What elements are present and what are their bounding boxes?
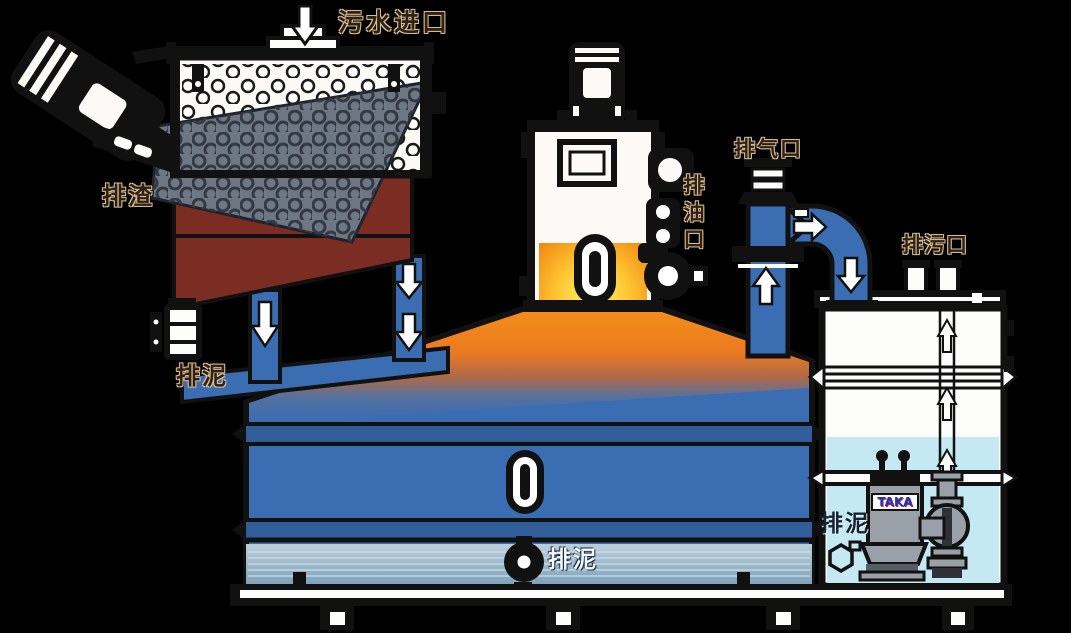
drain-port-stubs xyxy=(902,260,962,292)
oil-collection-cylinder xyxy=(519,42,708,312)
base-skid xyxy=(230,584,1012,630)
tank-level-link xyxy=(506,450,544,514)
discharge-riser-pipe xyxy=(938,308,956,482)
cylinder-chain-link xyxy=(574,234,616,304)
equipment-diagram: 污水进口 排渣 排泥 排气口 排油口 排污口 排泥 排泥 TAKA xyxy=(0,0,1071,633)
label-oil-discharge-port: 排油口 xyxy=(682,174,704,270)
main-separation-tank xyxy=(232,305,826,592)
skid-feet xyxy=(320,606,974,630)
pump-outlet xyxy=(920,518,944,538)
diagram-canvas xyxy=(0,0,1071,633)
label-sludge-discharge-left: 排泥 xyxy=(176,364,228,389)
sight-window xyxy=(560,142,614,184)
label-slag-discharge: 排渣 xyxy=(102,184,154,209)
label-sludge-discharge-center: 排泥 xyxy=(548,548,598,572)
sewage-inlet-fitting xyxy=(268,6,338,50)
vibrator-motor xyxy=(5,24,193,181)
label-sewage-inlet: 污水进口 xyxy=(338,10,450,36)
side-bracket xyxy=(430,92,446,114)
left-sludge-valve xyxy=(150,298,202,360)
label-exhaust-port: 排气口 xyxy=(734,138,803,160)
label-drain-port: 排污口 xyxy=(902,234,968,256)
label-sludge-discharge-right: 排泥 xyxy=(820,512,870,536)
pump-brand-text: TAKA xyxy=(874,496,916,509)
center-drive-motor xyxy=(527,42,659,132)
